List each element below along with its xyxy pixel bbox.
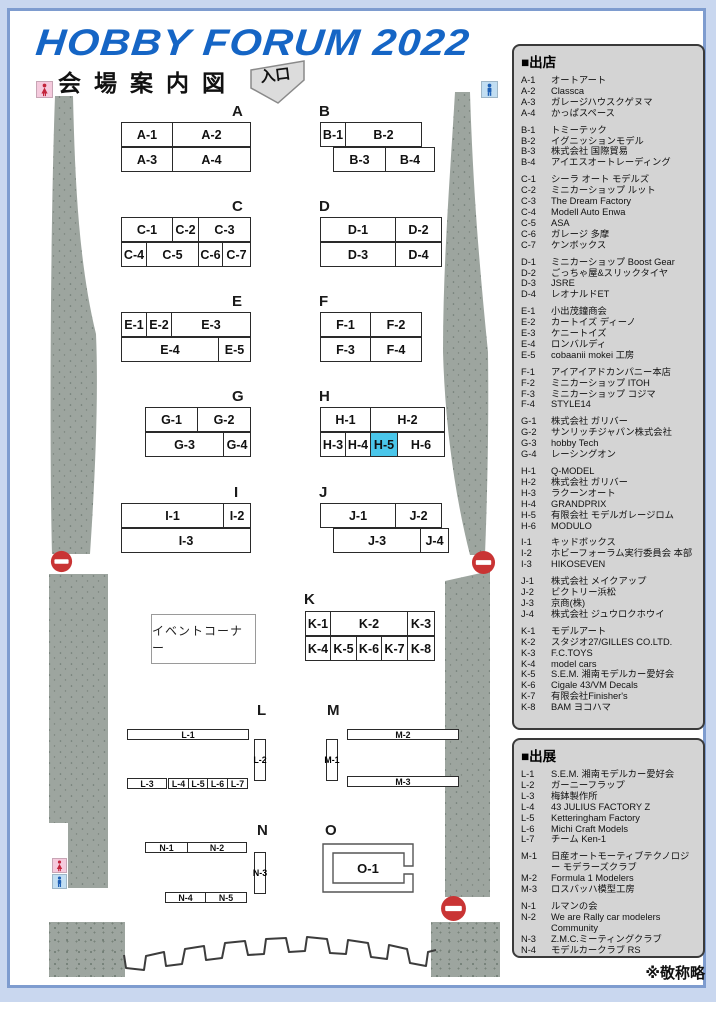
legend-entry-code: F-4 [521,399,551,410]
legend-entry-name: Q-MODEL [551,466,696,477]
legend-entry-code: K-5 [521,669,551,680]
legend-entry-D-1: D-1ミニカーショップ Boost Gear [521,257,696,268]
legend-shops-title: ■出店 [521,51,696,71]
legend-entry-C-1: C-1シーラ オート モデルズ [521,174,696,185]
legend-entry-L-7: L-7チーム Ken-1 [521,834,696,845]
legend-entry-L-4: L-443 JULIUS FACTORY Z [521,802,696,813]
legend-entry-I-3: I-3HIKOSEVEN [521,559,696,570]
legend-group: N-1ルマンの会N-2We are Rally car modelers Com… [521,901,696,958]
legend-entry-name: hobby Tech [551,438,696,449]
legend-entry-code: C-3 [521,196,551,207]
legend-entry-code: N-3 [521,934,551,945]
legend-entry-N-3: N-3Z.M.C.ミーティングクラブ [521,934,696,945]
legend-entry-name: キッドボックス [551,537,696,548]
legend-entry-K-8: K-8BAM ヨコハマ [521,702,696,713]
legend-entry-code: F-3 [521,389,551,400]
legend-entry-name: 有限会社 モデルガレージロム [551,510,696,521]
legend-entry-K-6: K-6Cigale 43/VM Decals [521,680,696,691]
legend-entry-name: ケニートイズ [551,328,696,339]
legend-entry-B-4: B-4アイエスオートレーディング [521,157,696,168]
legend-entry-name: ごっちゃ屋&スリックタイヤ [551,268,696,279]
legend-entry-name: モデルアート [551,626,696,637]
legend-entry-H-3: H-3ラクーンオート [521,488,696,499]
legend-entry-code: C-4 [521,207,551,218]
legend-entry-code: M-1 [521,851,551,873]
legend-entry-name: ミニカーショップ ITOH [551,378,696,389]
honorifics-note: ※敬称略 [512,962,705,983]
legend-entry-code: G-1 [521,416,551,427]
legend-entry-name: HIKOSEVEN [551,559,696,570]
legend-entry-name: ロンバルディ [551,339,696,350]
legend-entry-name: Formula 1 Modelers [551,873,696,884]
right-lower-wall [443,569,492,899]
legend-entry-code: G-3 [521,438,551,449]
legend-entry-code: B-2 [521,136,551,147]
legend-entry-name: JSRE [551,278,696,289]
legend-entry-code: M-3 [521,884,551,895]
legend-entry-K-5: K-5S.E.M. 湘南モデルカー愛好会 [521,669,696,680]
legend-entry-K-1: K-1モデルアート [521,626,696,637]
legend-entry-name: Modell Auto Enwa [551,207,696,218]
legend-entry-C-7: C-7ケンボックス [521,240,696,251]
legend-entry-E-1: E-1小出茂鐘商会 [521,306,696,317]
legend-entry-code: C-5 [521,218,551,229]
legend-entry-K-2: K-2スタジオ27/GILLES CO.LTD. [521,637,696,648]
legend-group: G-1株式会社 ガリバーG-2サンリッチジャパン株式会社G-3hobby Tec… [521,416,696,460]
event-corner-box: イベントコーナー [151,614,256,664]
legend-entry-M-3: M-3ロスバッハ模型工房 [521,884,696,895]
legend-entry-code: K-3 [521,648,551,659]
legend-entry-code: H-5 [521,510,551,521]
legend-entry-code: K-1 [521,626,551,637]
legend-entry-name: 小出茂鐘商会 [551,306,696,317]
legend-entry-C-2: C-2ミニカーショップ ルット [521,185,696,196]
legend-entry-I-2: I-2ホビーフォーラム実行委員会 本部 [521,548,696,559]
legend-entry-name: 43 JULIUS FACTORY Z [551,802,696,813]
legend-entry-C-3: C-3The Dream Factory [521,196,696,207]
legend-entry-code: B-3 [521,146,551,157]
legend-entry-code: N-4 [521,945,551,956]
legend-entry-name: ルマンの会 [551,901,696,912]
legend-entry-J-3: J-3京商(株) [521,598,696,609]
legend-entry-code: H-3 [521,488,551,499]
legend-entry-C-4: C-4Modell Auto Enwa [521,207,696,218]
right-pillar [440,92,494,557]
legend-entry-name: GRANDPRIX [551,499,696,510]
legend-entry-code: J-2 [521,587,551,598]
legend-entry-D-4: D-4レオナルドET [521,289,696,300]
legend-group: K-1モデルアートK-2スタジオ27/GILLES CO.LTD.K-3F.C.… [521,626,696,713]
entrance-label: 入口 [259,65,291,86]
legend-group: C-1シーラ オート モデルズC-2ミニカーショップ ルットC-3The Dre… [521,174,696,250]
no-entry-icon [50,550,73,573]
legend-entry-code: K-2 [521,637,551,648]
venue-map-page: HOBBY FORUM 2022 会場案内図 入口 [0,0,724,1024]
legend-entry-code: A-4 [521,108,551,119]
bottom-zigzag-wall [118,925,442,985]
legend-entry-name: カートイズ ディーノ [551,317,696,328]
legend-entry-code: K-4 [521,659,551,670]
legend-panel-exhibits: ■出展 L-1S.E.M. 湘南モデルカー愛好会L-2ガーニーフラップL-3梅鉢… [512,738,705,958]
legend-entry-name: ホビーフォーラム実行委員会 本部 [551,548,696,559]
legend-entry-code: N-5 [521,956,551,959]
legend-entry-L-5: L-5Ketteringham Factory [521,813,696,824]
legend-entry-K-3: K-3F.C.TOYS [521,648,696,659]
legend-entry-code: E-4 [521,339,551,350]
legend-entry-H-5: H-5有限会社 モデルガレージロム [521,510,696,521]
legend-entry-L-2: L-2ガーニーフラップ [521,780,696,791]
legend-entry-name: モデルカークラブ RS [551,945,696,956]
legend-entry-code: H-2 [521,477,551,488]
legend-entry-H-2: H-2株式会社 ガリバー [521,477,696,488]
legend-entry-code: H-6 [521,521,551,532]
legend-entry-code: C-2 [521,185,551,196]
legend-entry-code: J-3 [521,598,551,609]
legend-entry-name: 梅鉢製作所 [551,791,696,802]
legend-entry-code: C-1 [521,174,551,185]
legend-entry-name: 株式会社 メイクアップ [551,576,696,587]
legend-entry-name: Z.M.C.ミーティングクラブ [551,934,696,945]
legend-entry-code: D-3 [521,278,551,289]
legend-entry-code: N-2 [521,912,551,934]
legend-entry-L-1: L-1S.E.M. 湘南モデルカー愛好会 [521,769,696,780]
legend-entry-name: ケンボックス [551,240,696,251]
legend-entry-B-3: B-3株式会社 国際貿易 [521,146,696,157]
legend-entry-name: くるま村少年団 [551,956,696,959]
legend-entry-code: E-1 [521,306,551,317]
legend-entry-N-4: N-4モデルカークラブ RS [521,945,696,956]
legend-entry-F-3: F-3ミニカーショップ コジマ [521,389,696,400]
legend-group: H-1Q-MODELH-2株式会社 ガリバーH-3ラクーンオートH-4GRAND… [521,466,696,531]
legend-entry-code: L-1 [521,769,551,780]
legend-entry-G-4: G-4レーシングオン [521,449,696,460]
legend-entry-name: ラクーンオート [551,488,696,499]
legend-entry-code: L-6 [521,824,551,835]
legend-entry-code: H-4 [521,499,551,510]
legend-entry-code: A-1 [521,75,551,86]
legend-entry-J-4: J-4株式会社 ジュウロクホウイ [521,609,696,620]
legend-entry-code: L-4 [521,802,551,813]
legend-group: D-1ミニカーショップ Boost GearD-2ごっちゃ屋&スリックタイヤD-… [521,257,696,301]
legend-entry-code: I-2 [521,548,551,559]
legend-entry-E-3: E-3ケニートイズ [521,328,696,339]
legend-entry-code: F-2 [521,378,551,389]
legend-entry-code: B-4 [521,157,551,168]
legend-entry-code: D-1 [521,257,551,268]
legend-entry-code: A-2 [521,86,551,97]
legend-entry-name: ミニカーショップ コジマ [551,389,696,400]
legend-entry-A-3: A-3ガレージハウスクゲヌマ [521,97,696,108]
legend-entry-name: シーラ オート モデルズ [551,174,696,185]
legend-entry-name: かっぱスペース [551,108,696,119]
legend-entry-name: アイエスオートレーディング [551,157,696,168]
legend-entry-name: ミニカーショップ Boost Gear [551,257,696,268]
legend-entry-name: We are Rally car modelers Community [551,912,696,934]
legend-entry-name: 株式会社 ガリバー [551,416,696,427]
legend-entry-name: アイアイアドカンパニー本店 [551,367,696,378]
legend-exhibits-title: ■出展 [521,745,696,765]
legend-entry-name: レーシングオン [551,449,696,460]
legend-entry-A-1: A-1オートアート [521,75,696,86]
legend-entry-B-1: B-1トミーテック [521,125,696,136]
booth-cell-O-1: O-1 [357,861,379,876]
legend-entry-G-2: G-2サンリッチジャパン株式会社 [521,427,696,438]
legend-entry-name: Classca [551,86,696,97]
legend-entry-name: 有限会社Finisher's [551,691,696,702]
legend-group: M-1日産オートモーティブテクノロジー モデラーズクラブM-2Formula 1… [521,851,696,895]
legend-entry-code: N-1 [521,901,551,912]
page-subtitle: 会場案内図 [58,64,238,98]
legend-entry-name: ビクトリー浜松 [551,587,696,598]
legend-entry-name: STYLE14 [551,399,696,410]
legend-group: E-1小出茂鐘商会E-2カートイズ ディーノE-3ケニートイズE-4ロンバルディ… [521,306,696,361]
legend-entry-name: ガーニーフラップ [551,780,696,791]
legend-entry-H-1: H-1Q-MODEL [521,466,696,477]
legend-entry-code: C-6 [521,229,551,240]
entrance-arrow-icon: 入口 [247,57,315,109]
legend-entry-code: D-4 [521,289,551,300]
legend-group: A-1オートアートA-2ClasscaA-3ガレージハウスクゲヌマA-4かっぱス… [521,75,696,119]
legend-entry-code: L-5 [521,813,551,824]
legend-entry-code: G-2 [521,427,551,438]
legend-entry-A-4: A-4かっぱスペース [521,108,696,119]
legend-entry-name: 京商(株) [551,598,696,609]
legend-entry-name: model cars [551,659,696,670]
legend-entry-code: M-2 [521,873,551,884]
legend-entry-H-6: H-6MODULO [521,521,696,532]
legend-entry-name: Michi Craft Models [551,824,696,835]
legend-entry-code: E-3 [521,328,551,339]
legend-entry-name: 日産オートモーティブテクノロジー モデラーズクラブ [551,851,696,873]
legend-entry-name: BAM ヨコハマ [551,702,696,713]
legend-entry-F-2: F-2ミニカーショップ ITOH [521,378,696,389]
legend-panel-shops: ■出店 A-1オートアートA-2ClasscaA-3ガレージハウスクゲヌマA-4… [512,44,705,730]
legend-entry-N-1: N-1ルマンの会 [521,901,696,912]
legend-entry-code: L-2 [521,780,551,791]
legend-entry-D-3: D-3JSRE [521,278,696,289]
legend-entry-name: イグニッションモデル [551,136,696,147]
legend-entry-E-5: E-5cobaanii mokei 工房 [521,350,696,361]
legend-entry-code: J-1 [521,576,551,587]
legend-entry-name: Ketteringham Factory [551,813,696,824]
legend-entry-name: ミニカーショップ ルット [551,185,696,196]
legend-entry-name: ガレージ 多摩 [551,229,696,240]
legend-entry-K-7: K-7有限会社Finisher's [521,691,696,702]
legend-entry-J-1: J-1株式会社 メイクアップ [521,576,696,587]
legend-entry-M-1: M-1日産オートモーティブテクノロジー モデラーズクラブ [521,851,696,873]
legend-entry-C-6: C-6ガレージ 多摩 [521,229,696,240]
legend-entry-name: 株式会社 ガリバー [551,477,696,488]
legend-entry-name: サンリッチジャパン株式会社 [551,427,696,438]
legend-entry-L-3: L-3梅鉢製作所 [521,791,696,802]
legend-entry-N-5: N-5くるま村少年団 [521,956,696,959]
no-entry-icon [471,550,496,575]
legend-entry-name: ガレージハウスクゲヌマ [551,97,696,108]
booth-o1-shape: O-1 [321,842,415,894]
legend-entry-N-2: N-2We are Rally car modelers Community [521,912,696,934]
legend-entry-code: H-1 [521,466,551,477]
legend-entry-name: 株式会社 国際貿易 [551,146,696,157]
legend-group: L-1S.E.M. 湘南モデルカー愛好会L-2ガーニーフラップL-3梅鉢製作所L… [521,769,696,845]
legend-entry-K-4: K-4model cars [521,659,696,670]
left-lower-wall [47,573,109,889]
legend-entry-code: L-3 [521,791,551,802]
legend-entry-code: K-6 [521,680,551,691]
legend-entry-name: MODULO [551,521,696,532]
legend-entry-code: B-1 [521,125,551,136]
legend-entry-name: 株式会社 ジュウロクホウイ [551,609,696,620]
legend-entry-name: S.E.M. 湘南モデルカー愛好会 [551,769,696,780]
legend-entry-name: レオナルドET [551,289,696,300]
legend-entry-code: D-2 [521,268,551,279]
legend-entry-code: F-1 [521,367,551,378]
legend-entry-M-2: M-2Formula 1 Modelers [521,873,696,884]
legend-entry-A-2: A-2Classca [521,86,696,97]
legend-entry-code: K-8 [521,702,551,713]
legend-group: B-1トミーテックB-2イグニッションモデルB-3株式会社 国際貿易B-4アイエ… [521,125,696,169]
legend-entry-G-3: G-3hobby Tech [521,438,696,449]
legend-entry-code: E-5 [521,350,551,361]
left-pillar [46,94,102,556]
legend-entry-name: The Dream Factory [551,196,696,207]
legend-entry-name: Cigale 43/VM Decals [551,680,696,691]
legend-entry-F-4: F-4STYLE14 [521,399,696,410]
no-entry-icon [440,895,467,922]
legend-entry-E-4: E-4ロンバルディ [521,339,696,350]
legend-entry-name: トミーテック [551,125,696,136]
legend-entry-code: I-3 [521,559,551,570]
legend-entry-code: C-7 [521,240,551,251]
legend-exhibits-body: L-1S.E.M. 湘南モデルカー愛好会L-2ガーニーフラップL-3梅鉢製作所L… [521,769,696,958]
legend-entry-F-1: F-1アイアイアドカンパニー本店 [521,367,696,378]
legend-entry-name: ロスバッハ模型工房 [551,884,696,895]
legend-entry-G-1: G-1株式会社 ガリバー [521,416,696,427]
bottom-left-wall [49,922,125,977]
legend-entry-B-2: B-2イグニッションモデル [521,136,696,147]
legend-entry-name: スタジオ27/GILLES CO.LTD. [551,637,696,648]
legend-shops-body: A-1オートアートA-2ClasscaA-3ガレージハウスクゲヌマA-4かっぱス… [521,75,696,713]
legend-group: J-1株式会社 メイクアップJ-2ビクトリー浜松J-3京商(株)J-4株式会社 … [521,576,696,620]
legend-entry-J-2: J-2ビクトリー浜松 [521,587,696,598]
legend-entry-name: チーム Ken-1 [551,834,696,845]
legend-entry-code: G-4 [521,449,551,460]
legend-entry-code: K-7 [521,691,551,702]
legend-entry-code: E-2 [521,317,551,328]
legend-entry-E-2: E-2カートイズ ディーノ [521,317,696,328]
legend-group: F-1アイアイアドカンパニー本店F-2ミニカーショップ ITOHF-3ミニカーシ… [521,367,696,411]
legend-entry-name: S.E.M. 湘南モデルカー愛好会 [551,669,696,680]
legend-entry-C-5: C-5ASA [521,218,696,229]
legend-entry-L-6: L-6Michi Craft Models [521,824,696,835]
legend-entry-name: F.C.TOYS [551,648,696,659]
legend-entry-code: J-4 [521,609,551,620]
legend-entry-name: オートアート [551,75,696,86]
legend-entry-code: I-1 [521,537,551,548]
legend-entry-code: L-7 [521,834,551,845]
legend-entry-name: ASA [551,218,696,229]
legend-entry-I-1: I-1キッドボックス [521,537,696,548]
legend-entry-code: A-3 [521,97,551,108]
legend-entry-H-4: H-4GRANDPRIX [521,499,696,510]
legend-group: I-1キッドボックスI-2ホビーフォーラム実行委員会 本部I-3HIKOSEVE… [521,537,696,570]
legend-entry-name: cobaanii mokei 工房 [551,350,696,361]
legend-entry-D-2: D-2ごっちゃ屋&スリックタイヤ [521,268,696,279]
